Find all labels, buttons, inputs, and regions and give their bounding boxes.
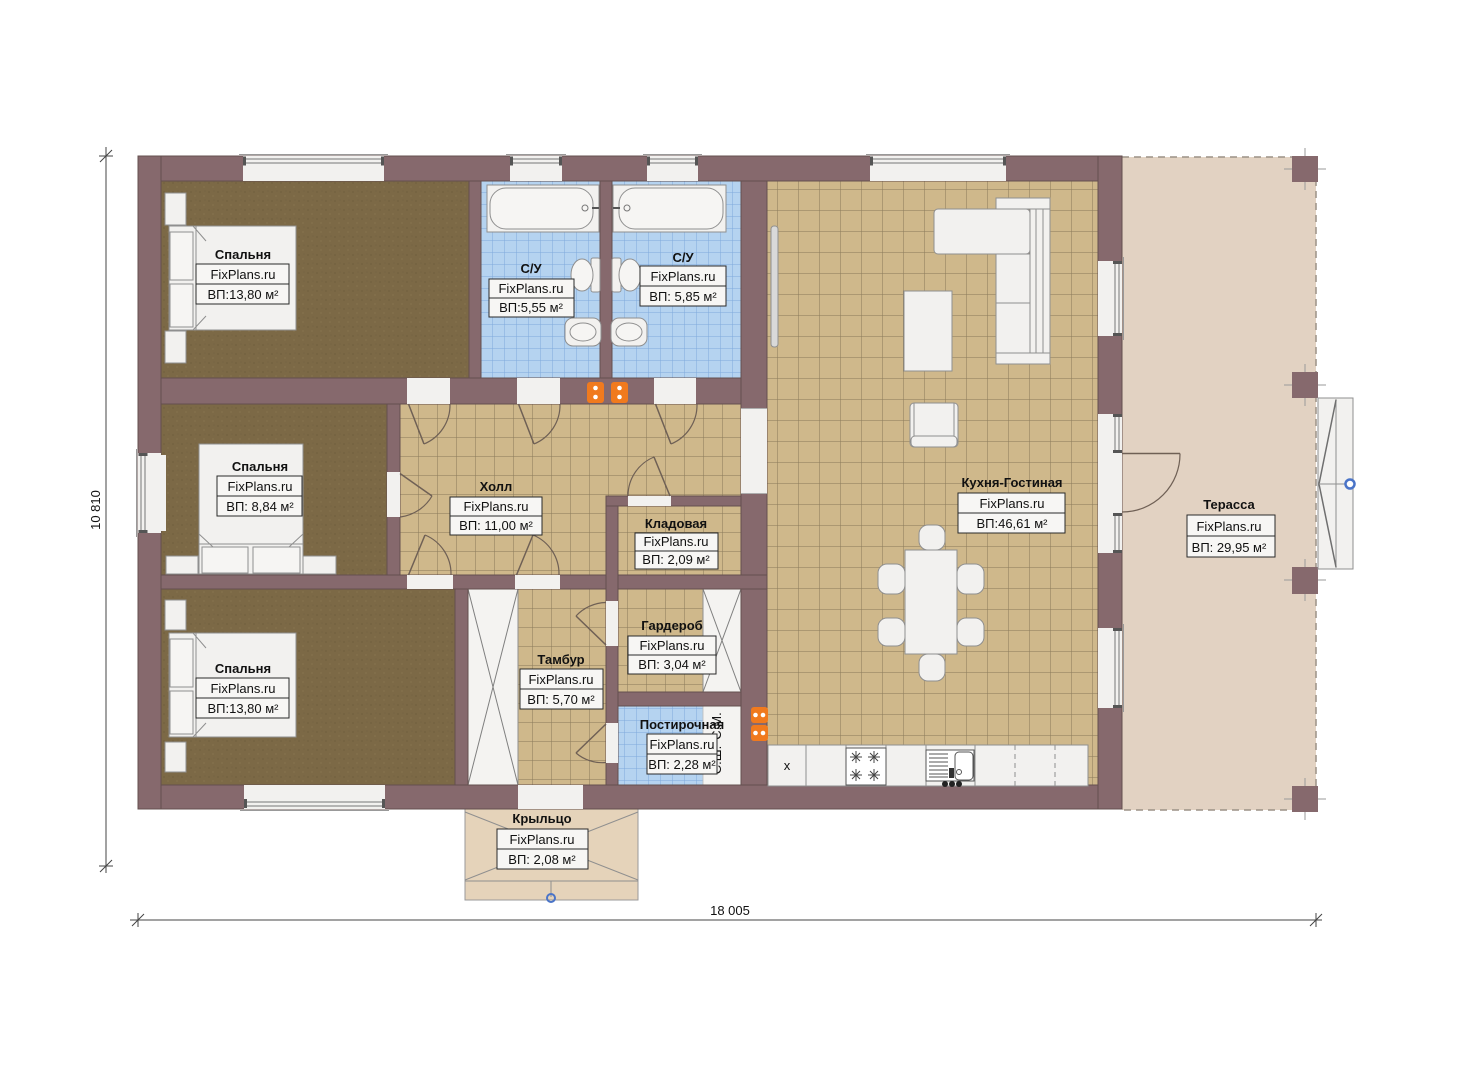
svg-text:ВП:13,80 м²: ВП:13,80 м² [207, 701, 279, 716]
svg-text:Гардероб: Гардероб [641, 618, 702, 633]
svg-text:Спальня: Спальня [215, 247, 271, 262]
svg-text:18 005: 18 005 [710, 903, 750, 918]
svg-text:FixPlans.ru: FixPlans.ru [210, 681, 275, 696]
svg-text:ВП: 3,04 м²: ВП: 3,04 м² [638, 657, 706, 672]
svg-text:FixPlans.ru: FixPlans.ru [1196, 519, 1261, 534]
svg-text:Спальня: Спальня [232, 459, 288, 474]
svg-text:FixPlans.ru: FixPlans.ru [649, 737, 714, 752]
svg-text:FixPlans.ru: FixPlans.ru [210, 267, 275, 282]
svg-text:ВП: 5,70 м²: ВП: 5,70 м² [527, 692, 595, 707]
svg-text:С/У: С/У [672, 250, 694, 265]
svg-text:ВП: 8,84 м²: ВП: 8,84 м² [226, 499, 294, 514]
svg-text:Кухня-Гостиная: Кухня-Гостиная [961, 475, 1062, 490]
svg-text:С/У: С/У [520, 261, 542, 276]
svg-text:FixPlans.ru: FixPlans.ru [498, 281, 563, 296]
svg-text:ВП: 11,00 м²: ВП: 11,00 м² [459, 518, 533, 533]
svg-text:FixPlans.ru: FixPlans.ru [509, 832, 574, 847]
svg-text:ВП:46,61 м²: ВП:46,61 м² [976, 516, 1048, 531]
svg-text:10 810: 10 810 [88, 490, 103, 530]
svg-text:Постирочная: Постирочная [640, 717, 724, 732]
svg-text:Крыльцо: Крыльцо [512, 811, 571, 826]
svg-text:FixPlans.ru: FixPlans.ru [528, 672, 593, 687]
svg-text:FixPlans.ru: FixPlans.ru [463, 499, 528, 514]
svg-text:ВП: 2,09 м²: ВП: 2,09 м² [642, 552, 710, 567]
svg-text:ВП: 29,95 м²: ВП: 29,95 м² [1192, 540, 1267, 555]
svg-text:Кладовая: Кладовая [645, 516, 707, 531]
svg-text:Спальня: Спальня [215, 661, 271, 676]
svg-text:ВП:13,80 м²: ВП:13,80 м² [207, 287, 279, 302]
svg-text:FixPlans.ru: FixPlans.ru [979, 496, 1044, 511]
svg-text:ВП: 5,85 м²: ВП: 5,85 м² [649, 289, 717, 304]
svg-text:x: x [784, 758, 791, 773]
svg-text:Тамбур: Тамбур [537, 652, 584, 667]
svg-text:FixPlans.ru: FixPlans.ru [643, 534, 708, 549]
svg-text:ВП: 2,08 м²: ВП: 2,08 м² [508, 852, 576, 867]
svg-text:ВП:5,55 м²: ВП:5,55 м² [499, 300, 563, 315]
svg-text:Терасса: Терасса [1203, 497, 1255, 512]
svg-text:FixPlans.ru: FixPlans.ru [650, 269, 715, 284]
svg-text:Холл: Холл [480, 479, 513, 494]
svg-text:ВП: 2,28 м²: ВП: 2,28 м² [648, 757, 716, 772]
svg-text:FixPlans.ru: FixPlans.ru [639, 638, 704, 653]
svg-text:FixPlans.ru: FixPlans.ru [227, 479, 292, 494]
